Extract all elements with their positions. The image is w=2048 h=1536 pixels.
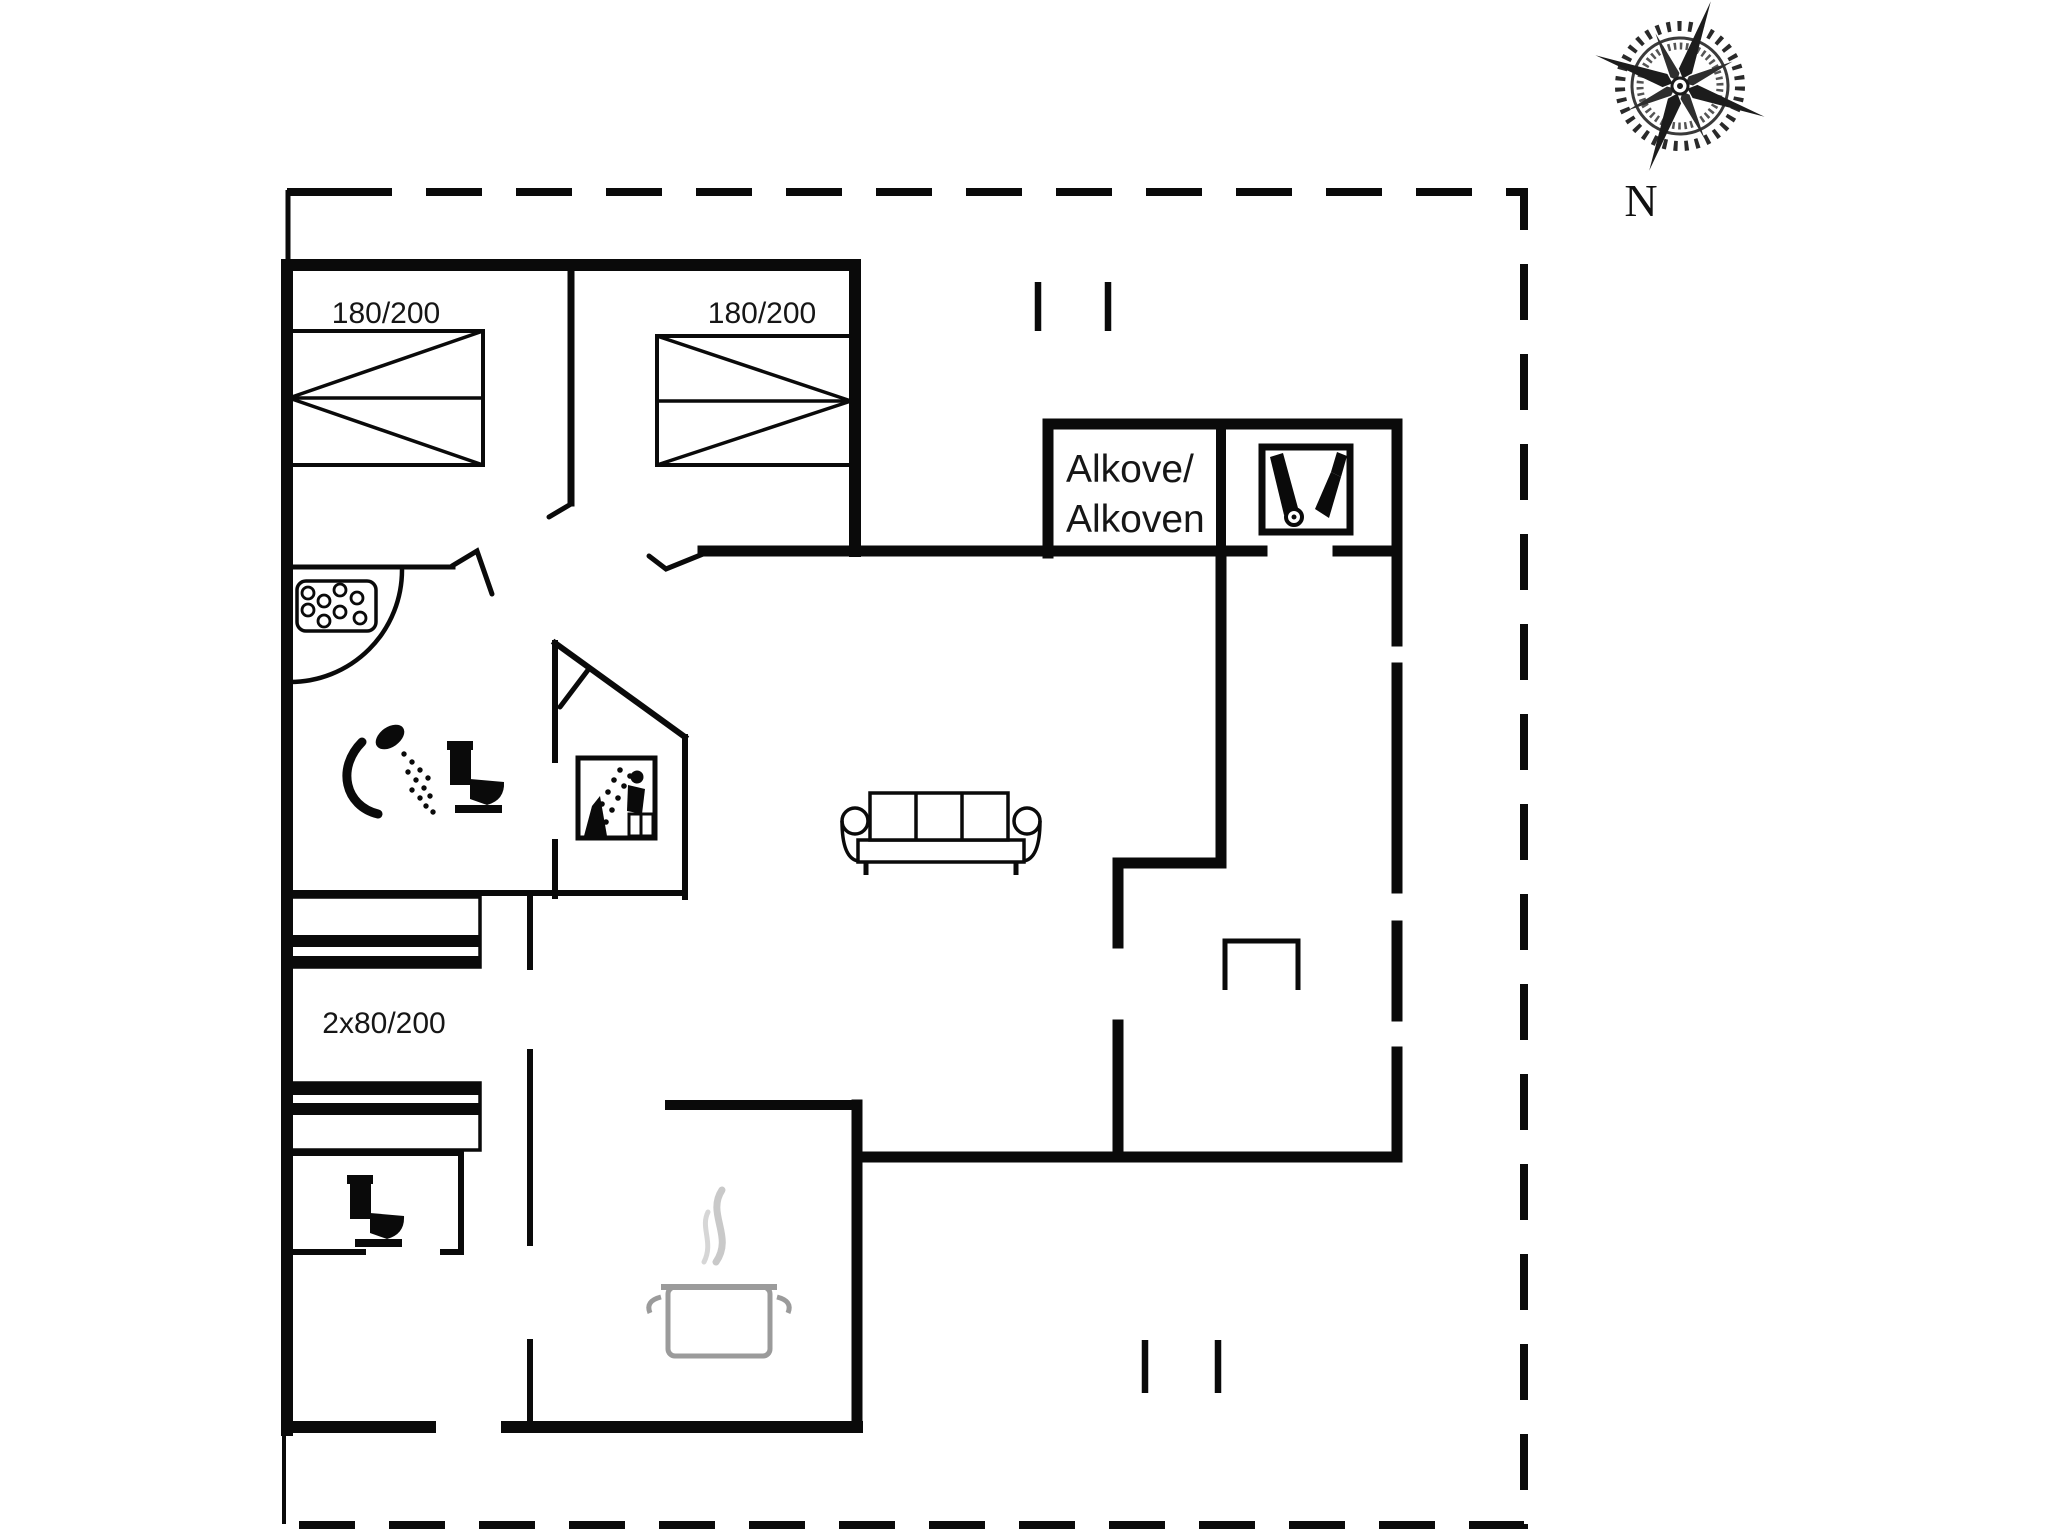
wall-toilet-room xyxy=(287,1153,461,1252)
bed-size-label: 180/200 xyxy=(708,297,816,330)
door-symbols xyxy=(290,504,703,707)
pot-body xyxy=(668,1287,770,1356)
whirlpool-bubbles xyxy=(302,584,366,627)
living-room xyxy=(842,793,1040,875)
whirlpool-icon xyxy=(297,581,376,631)
vacuum-cleaner-icon xyxy=(1262,447,1350,532)
compass-rose-icon xyxy=(1565,0,1796,201)
bunk-bar xyxy=(289,1103,480,1115)
sofa-symbol xyxy=(842,793,1040,875)
pot-handle-left xyxy=(649,1297,661,1313)
vacuum-wheel-hub xyxy=(1292,515,1297,520)
toilet-icon xyxy=(447,741,504,813)
pot-steam xyxy=(716,1190,722,1262)
sofa-arm-right xyxy=(1014,808,1040,834)
shower-spray xyxy=(401,751,435,814)
toilet-icon xyxy=(347,1175,404,1247)
compass: N xyxy=(1565,0,1796,226)
walls-thin xyxy=(287,567,685,1425)
shower-head xyxy=(371,720,409,755)
pot-handle-right xyxy=(777,1297,789,1313)
sauna xyxy=(578,758,655,838)
sofa-back-cushions xyxy=(870,793,1008,840)
annex-room xyxy=(1225,941,1298,990)
toilet-room xyxy=(347,1175,404,1247)
pot-steam-small xyxy=(704,1212,708,1262)
double-bed-symbol xyxy=(657,336,851,465)
bunk-bar xyxy=(289,935,480,947)
bunk-bar xyxy=(289,956,480,967)
bunk-bed-symbol-upper xyxy=(289,897,480,967)
sauna-person-head xyxy=(631,771,644,784)
bunk-size-label: 2x80/200 xyxy=(322,1007,445,1040)
sofa-feet xyxy=(866,862,1016,875)
bedroom-right: 180/200 xyxy=(657,297,851,465)
alcove-label-line1: Alkove/ xyxy=(1066,448,1194,491)
bunk-room: 2x80/200 xyxy=(289,897,480,1150)
sofa-arm-left xyxy=(842,808,868,834)
bedroom1-door-leaf xyxy=(452,551,492,594)
fireplace-symbol xyxy=(1225,941,1298,990)
floor-plan-page: 180/200 180/200 2x80/200 xyxy=(0,0,2048,1536)
cooking-pot-icon xyxy=(649,1190,789,1356)
bedroom2-door-leaf xyxy=(649,554,703,569)
alcove-area: Alkove/ Alkoven xyxy=(1066,447,1350,541)
toilet-lid xyxy=(447,741,473,750)
sauna-person-body xyxy=(627,785,645,814)
bedroom-divider-door-tick xyxy=(549,504,571,517)
bathroom xyxy=(297,581,504,815)
toilet-tank xyxy=(450,750,471,785)
walls-thick xyxy=(287,265,1397,1430)
kitchen xyxy=(649,1190,789,1356)
shower-hose xyxy=(347,742,378,814)
sauna-door-tick xyxy=(560,670,588,707)
bunk-bed-symbol-lower xyxy=(289,1083,480,1150)
bedroom-left: 180/200 xyxy=(289,297,483,465)
double-bed-symbol xyxy=(289,331,483,465)
sofa-seat xyxy=(858,840,1024,862)
floor-plan-canvas: 180/200 180/200 2x80/200 xyxy=(0,0,2048,1536)
bunk-bar xyxy=(289,1083,480,1095)
toilet-bowl xyxy=(470,779,504,805)
compass-north-label: N xyxy=(1624,175,1657,226)
shower-icon xyxy=(347,720,436,815)
bed-size-label: 180/200 xyxy=(332,297,440,330)
alcove-label-line2: Alkoven xyxy=(1066,498,1205,541)
toilet-base xyxy=(455,805,502,813)
